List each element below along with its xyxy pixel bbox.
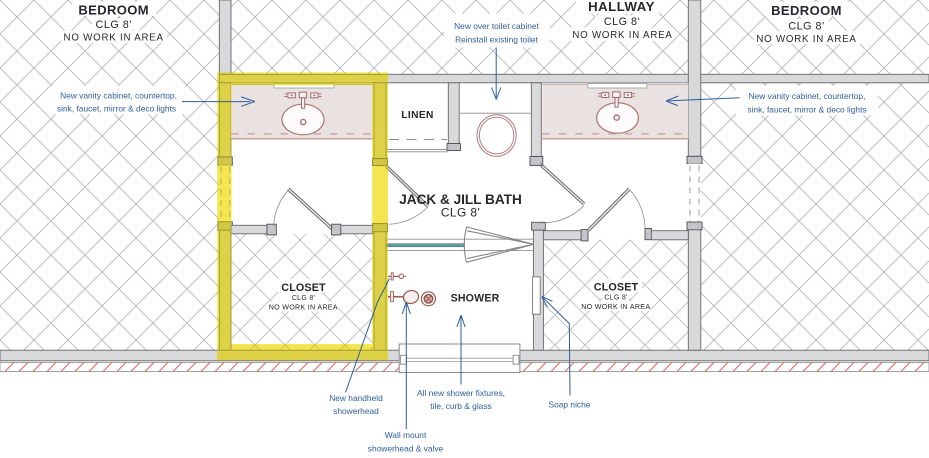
svg-text:CLG 8': CLG 8' xyxy=(441,206,480,220)
svg-text:NO WORK IN AREA: NO WORK IN AREA xyxy=(756,34,856,45)
svg-text:New vanity cabinet, countertop: New vanity cabinet, countertop, xyxy=(60,90,177,100)
svg-text:BEDROOM: BEDROOM xyxy=(78,2,149,17)
svg-text:New vanity cabinet, countertop: New vanity cabinet, countertop, xyxy=(749,91,866,101)
svg-text:NO WORK IN AREA: NO WORK IN AREA xyxy=(269,304,338,312)
svg-text:New over toilet cabinet: New over toilet cabinet xyxy=(454,21,539,31)
svg-text:BEDROOM: BEDROOM xyxy=(771,3,842,18)
svg-text:Soap niche: Soap niche xyxy=(549,399,591,409)
svg-text:CLOSET: CLOSET xyxy=(281,282,326,294)
svg-text:CLG 8': CLG 8' xyxy=(788,20,824,32)
svg-text:CLG 8': CLG 8' xyxy=(604,294,627,301)
svg-text:sink, faucet, mirror & deco li: sink, faucet, mirror & deco lights xyxy=(747,105,866,115)
svg-text:tile, curb & glass: tile, curb & glass xyxy=(430,401,491,411)
svg-text:New handheld: New handheld xyxy=(329,393,383,403)
svg-text:sink, faucet, mirror & deco li: sink, faucet, mirror & deco lights xyxy=(57,104,176,114)
svg-text:Reinstall existing toilet: Reinstall existing toilet xyxy=(455,34,539,44)
svg-text:HALLWAY: HALLWAY xyxy=(588,0,655,14)
svg-text:showerhead: showerhead xyxy=(333,406,379,416)
svg-text:CLG 8': CLG 8' xyxy=(96,19,132,31)
svg-text:All new shower fixtures,: All new shower fixtures, xyxy=(417,388,505,398)
svg-text:NO WORK IN AREA: NO WORK IN AREA xyxy=(64,33,164,44)
svg-text:SHOWER: SHOWER xyxy=(451,292,500,304)
svg-text:CLOSET: CLOSET xyxy=(594,281,639,293)
svg-text:CLG 8': CLG 8' xyxy=(292,295,315,302)
svg-text:CLG 8': CLG 8' xyxy=(604,16,640,28)
svg-text:Wall mount: Wall mount xyxy=(385,430,427,440)
svg-text:NO WORK IN AREA: NO WORK IN AREA xyxy=(581,303,650,311)
svg-text:NO WORK IN AREA: NO WORK IN AREA xyxy=(572,30,672,41)
svg-text:LINEN: LINEN xyxy=(401,110,434,121)
svg-text:showerhead & valve: showerhead & valve xyxy=(368,443,444,453)
